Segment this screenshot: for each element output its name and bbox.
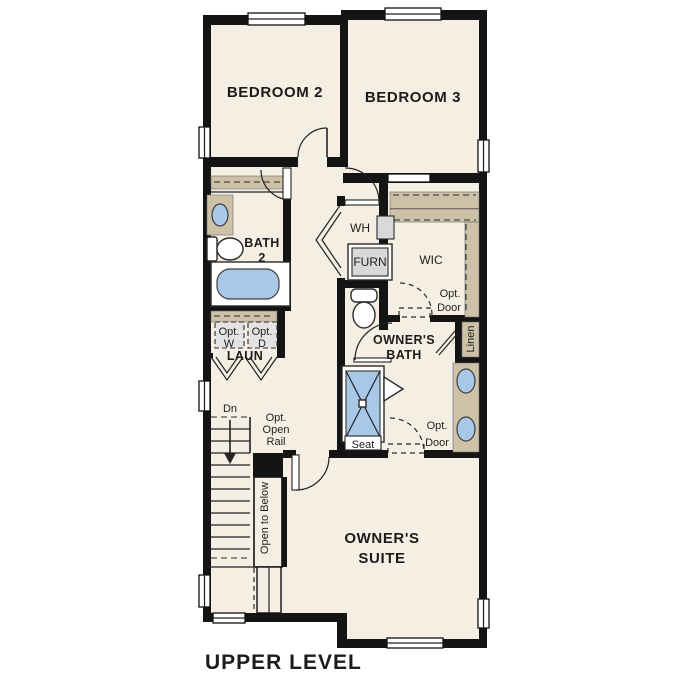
floor-plan-page: BEDROOM 2 BEDROOM 3 BATH 2 LAUN WH FURN … <box>0 0 687 687</box>
room-label-owners-bath-line2: BATH <box>386 348 421 362</box>
window <box>213 613 245 623</box>
window <box>387 638 443 648</box>
label-opt-washer-line1: Opt. <box>219 326 240 338</box>
room-label-bedroom2: BEDROOM 2 <box>227 84 323 101</box>
label-linen: Linen <box>465 326 477 353</box>
laundry-shelf <box>211 311 277 322</box>
bedroom3-doorway <box>388 174 430 182</box>
window <box>199 127 210 158</box>
window <box>478 140 489 172</box>
label-water-heater: WH <box>350 221 370 235</box>
label-opt-dryer-line1: Opt. <box>252 326 273 338</box>
label-opt-open-rail-line3: Rail <box>267 436 286 448</box>
plan-title: UPPER LEVEL <box>205 651 362 674</box>
label-opt-open-rail-line1: Opt. <box>266 412 287 424</box>
window <box>385 8 441 20</box>
room-label-bedroom3: BEDROOM 3 <box>365 89 461 106</box>
window <box>199 381 210 411</box>
water-heater <box>377 216 394 239</box>
bedroom3-closet <box>390 192 479 209</box>
owners-toilet <box>351 289 377 328</box>
window <box>478 599 489 628</box>
room-label-laundry: LAUN <box>227 349 263 363</box>
room-label-wic: WIC <box>419 253 443 267</box>
label-wic-opt-door-line2: Door <box>437 302 461 314</box>
sink <box>212 204 228 226</box>
room-label-owners-suite-line1: OWNER'S <box>344 530 419 547</box>
label-opt-washer-line2: W <box>224 338 235 350</box>
sink <box>457 369 475 393</box>
room-label-owners-suite-line2: SUITE <box>358 550 405 567</box>
stair-railing <box>257 567 281 613</box>
sink <box>457 417 475 441</box>
label-open-to-below: Open to Below <box>259 482 271 554</box>
label-opt-dryer-line2: D <box>258 338 266 350</box>
label-wic-opt-door-line1: Opt. <box>440 288 461 300</box>
bath2-toilet <box>207 237 243 261</box>
label-stairs-down: Dn <box>223 403 237 415</box>
label-suite-opt-door-line2: Door <box>425 437 449 449</box>
room-label-owners-bath-line1: OWNER'S <box>373 333 435 347</box>
bathtub <box>211 262 290 306</box>
owners-vanity <box>453 363 479 452</box>
bath2-vanity <box>207 195 233 235</box>
label-furnace: FURN <box>353 255 386 269</box>
label-suite-opt-door-line1: Opt. <box>427 420 448 432</box>
window <box>248 13 305 25</box>
room-label-bath2-line1: BATH <box>244 236 279 250</box>
label-seat: Seat <box>352 439 375 451</box>
window <box>199 575 210 607</box>
label-opt-open-rail-line2: Open <box>263 424 290 436</box>
room-label-bath2-line2: 2 <box>258 251 265 265</box>
floor-plan-svg: BEDROOM 2 BEDROOM 3 BATH 2 LAUN WH FURN … <box>0 0 687 687</box>
